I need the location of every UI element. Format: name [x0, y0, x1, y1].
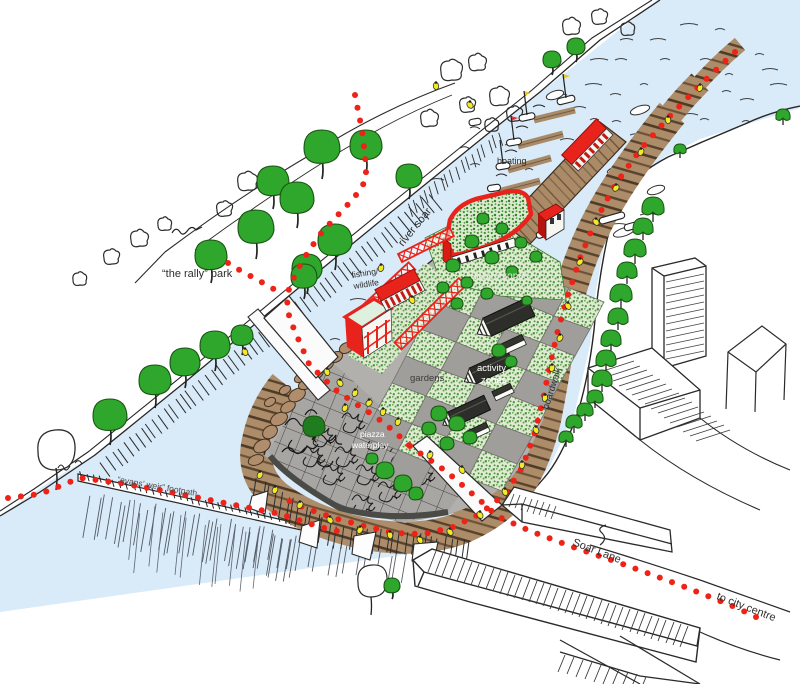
svg-text:zones: zones — [481, 375, 507, 386]
svg-text:“the rally” park: “the rally” park — [162, 268, 233, 280]
svg-text:waterplay: waterplay — [351, 440, 389, 450]
svg-text:activity: activity — [477, 363, 506, 374]
svg-text:piazza: piazza — [360, 429, 385, 439]
svg-text:nature zones: nature zones — [471, 271, 529, 282]
svg-text:boating: boating — [497, 156, 527, 166]
svg-text:gardens: gardens — [410, 373, 445, 384]
